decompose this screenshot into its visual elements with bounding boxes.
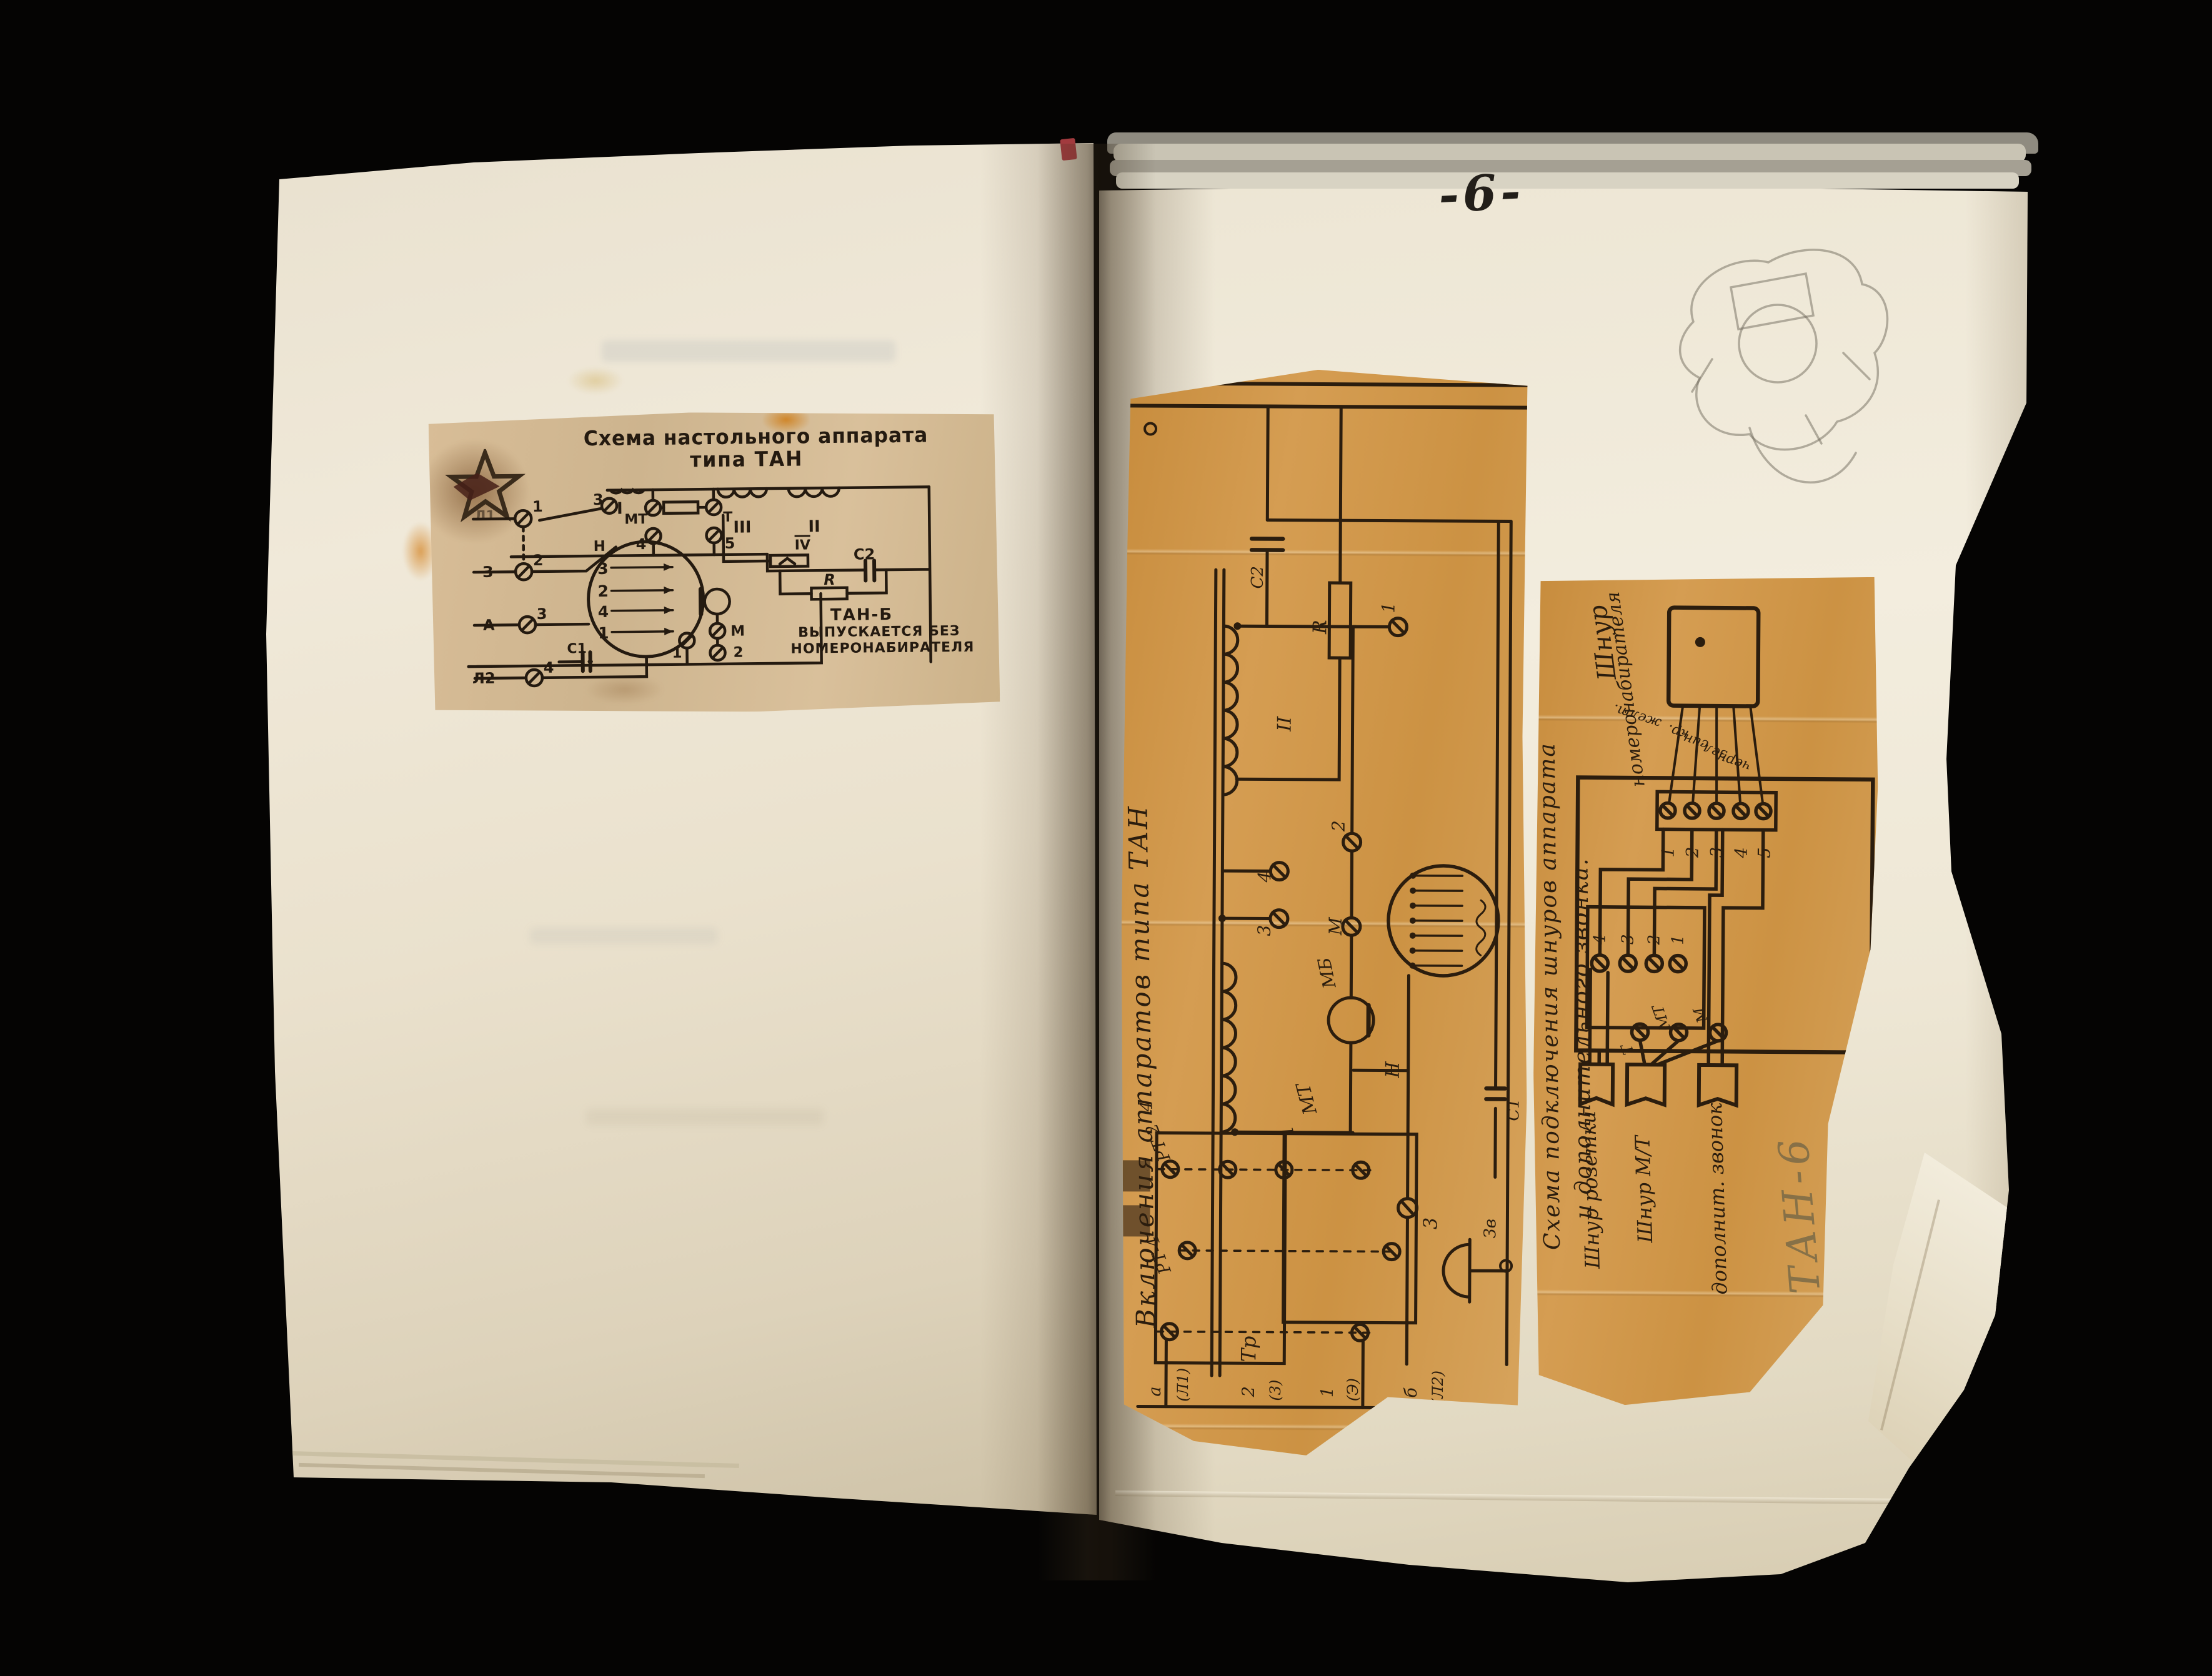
bottom-terminal-label: а	[1145, 1386, 1165, 1396]
dial-number: 2	[597, 582, 609, 600]
component-label: Зв	[1481, 1219, 1500, 1239]
strip-number: 1	[1658, 846, 1678, 857]
bleed-through-text	[602, 340, 895, 362]
inner-terminal-num: 1	[1669, 935, 1688, 945]
screw-num: 5	[725, 535, 735, 552]
dial-number: 4	[598, 603, 609, 621]
screw-label: 3	[1254, 925, 1275, 936]
component-label: R	[1309, 620, 1331, 634]
screw-label: 4	[1254, 871, 1275, 883]
line-terminal-label: Л1	[474, 508, 496, 524]
strip-number: 4	[1731, 847, 1751, 858]
bottom-terminal-label: 2	[1239, 1386, 1258, 1397]
right-page-edge-shade	[1965, 134, 2040, 1593]
line-terminal-num: 3	[537, 605, 547, 623]
page-stain	[567, 367, 624, 395]
coil-label: III	[733, 518, 751, 537]
transformer-label: Тр	[1237, 1336, 1260, 1362]
bottom-terminal-label: б	[1402, 1387, 1421, 1398]
line-terminal-label: А	[483, 617, 495, 634]
screw-label: 2	[1328, 820, 1349, 831]
screw-num: 3	[593, 491, 604, 508]
page-number-handwritten: -6-	[1437, 163, 1526, 224]
bottom-terminal-label: (Э)	[1344, 1378, 1362, 1401]
line-terminal-num: 2	[533, 552, 544, 569]
clipping-title: Схема подключения шнуров аппарата	[1535, 742, 1566, 1250]
middle-clipping: Включения аппаратов типа ТАН Тр II МТ 1 …	[1118, 366, 1530, 1458]
dial-number: 1	[598, 624, 609, 642]
screw-num: 4	[636, 535, 647, 553]
bottom-terminal-label: (3)	[1267, 1380, 1284, 1401]
component-label: С2	[1248, 566, 1267, 589]
torn-corner	[1868, 1153, 2037, 1490]
page-stack-top	[1107, 132, 2038, 197]
screw-label: М	[1325, 917, 1346, 935]
pencil-sketch	[1656, 228, 1906, 522]
left-page	[261, 134, 1105, 1524]
component-label: Н	[1382, 1061, 1404, 1078]
component-label: 1	[672, 645, 682, 662]
bleed-through-text	[530, 928, 717, 944]
note-line: ВЫПУСКАЕТСЯ БЕЗ	[798, 623, 960, 641]
strip-number: 5	[1755, 847, 1774, 858]
left-clipping: Схема настольного аппарата типа ТАН I МТ…	[429, 409, 1000, 715]
component-label: С1	[567, 641, 587, 657]
coil-label: Т	[723, 510, 732, 525]
middle-schematic-drawing	[1118, 366, 1530, 1458]
notebook-photo: -6-	[0, 0, 2212, 1676]
strip-label: 4	[1137, 1101, 1156, 1111]
coil-label: I	[617, 500, 623, 518]
coil-label: МТ	[624, 512, 647, 527]
page-crease	[1115, 1490, 1946, 1505]
note-line: НОМЕРОНАБИРАТЕЛЯ	[790, 640, 974, 657]
page-stack-edge	[1116, 172, 2019, 189]
component-label: С2	[854, 545, 875, 563]
screw-label: 1	[1378, 602, 1399, 613]
component-label: С1	[1504, 1098, 1523, 1121]
cord-label: Шнур М/Т	[1630, 1136, 1657, 1244]
strip-number: 3	[1707, 847, 1726, 858]
line-terminal-label: Л2	[472, 670, 496, 687]
component-label: R	[824, 571, 835, 588]
line-terminal-num: 4	[544, 659, 554, 677]
clipping-title: типа ТАН	[690, 447, 803, 472]
component-label: Н	[594, 538, 606, 555]
line-terminal-num: 1	[532, 498, 543, 515]
strip-number: 2	[1683, 847, 1702, 858]
inner-terminal-num: 2	[1645, 935, 1664, 945]
line-terminal-label: З	[482, 563, 493, 581]
inner-terminal-num: 3	[1619, 934, 1638, 945]
component-label: IV	[795, 535, 811, 553]
bottom-terminal-label: (Л1)	[1174, 1368, 1192, 1402]
coil-label: II	[808, 517, 820, 536]
winding-label: II	[1274, 717, 1296, 731]
bleed-through-text	[586, 1109, 824, 1125]
cord-label: Шнур розетки	[1577, 1111, 1605, 1269]
dial-number: 3	[597, 560, 609, 578]
middle-clipping-rotated-content: Включения аппаратов типа ТАН Тр II МТ 1 …	[1118, 366, 1530, 1458]
component-label: 2	[733, 645, 743, 661]
inner-terminal-num: 4	[1591, 934, 1610, 945]
screw-label: 3	[1420, 1217, 1442, 1229]
note-line: ТАН-Б	[830, 605, 894, 625]
bottom-terminal-label: 1	[1318, 1387, 1337, 1397]
component-label: М	[730, 623, 745, 639]
bottom-terminal-label: (Л2)	[1429, 1371, 1447, 1404]
